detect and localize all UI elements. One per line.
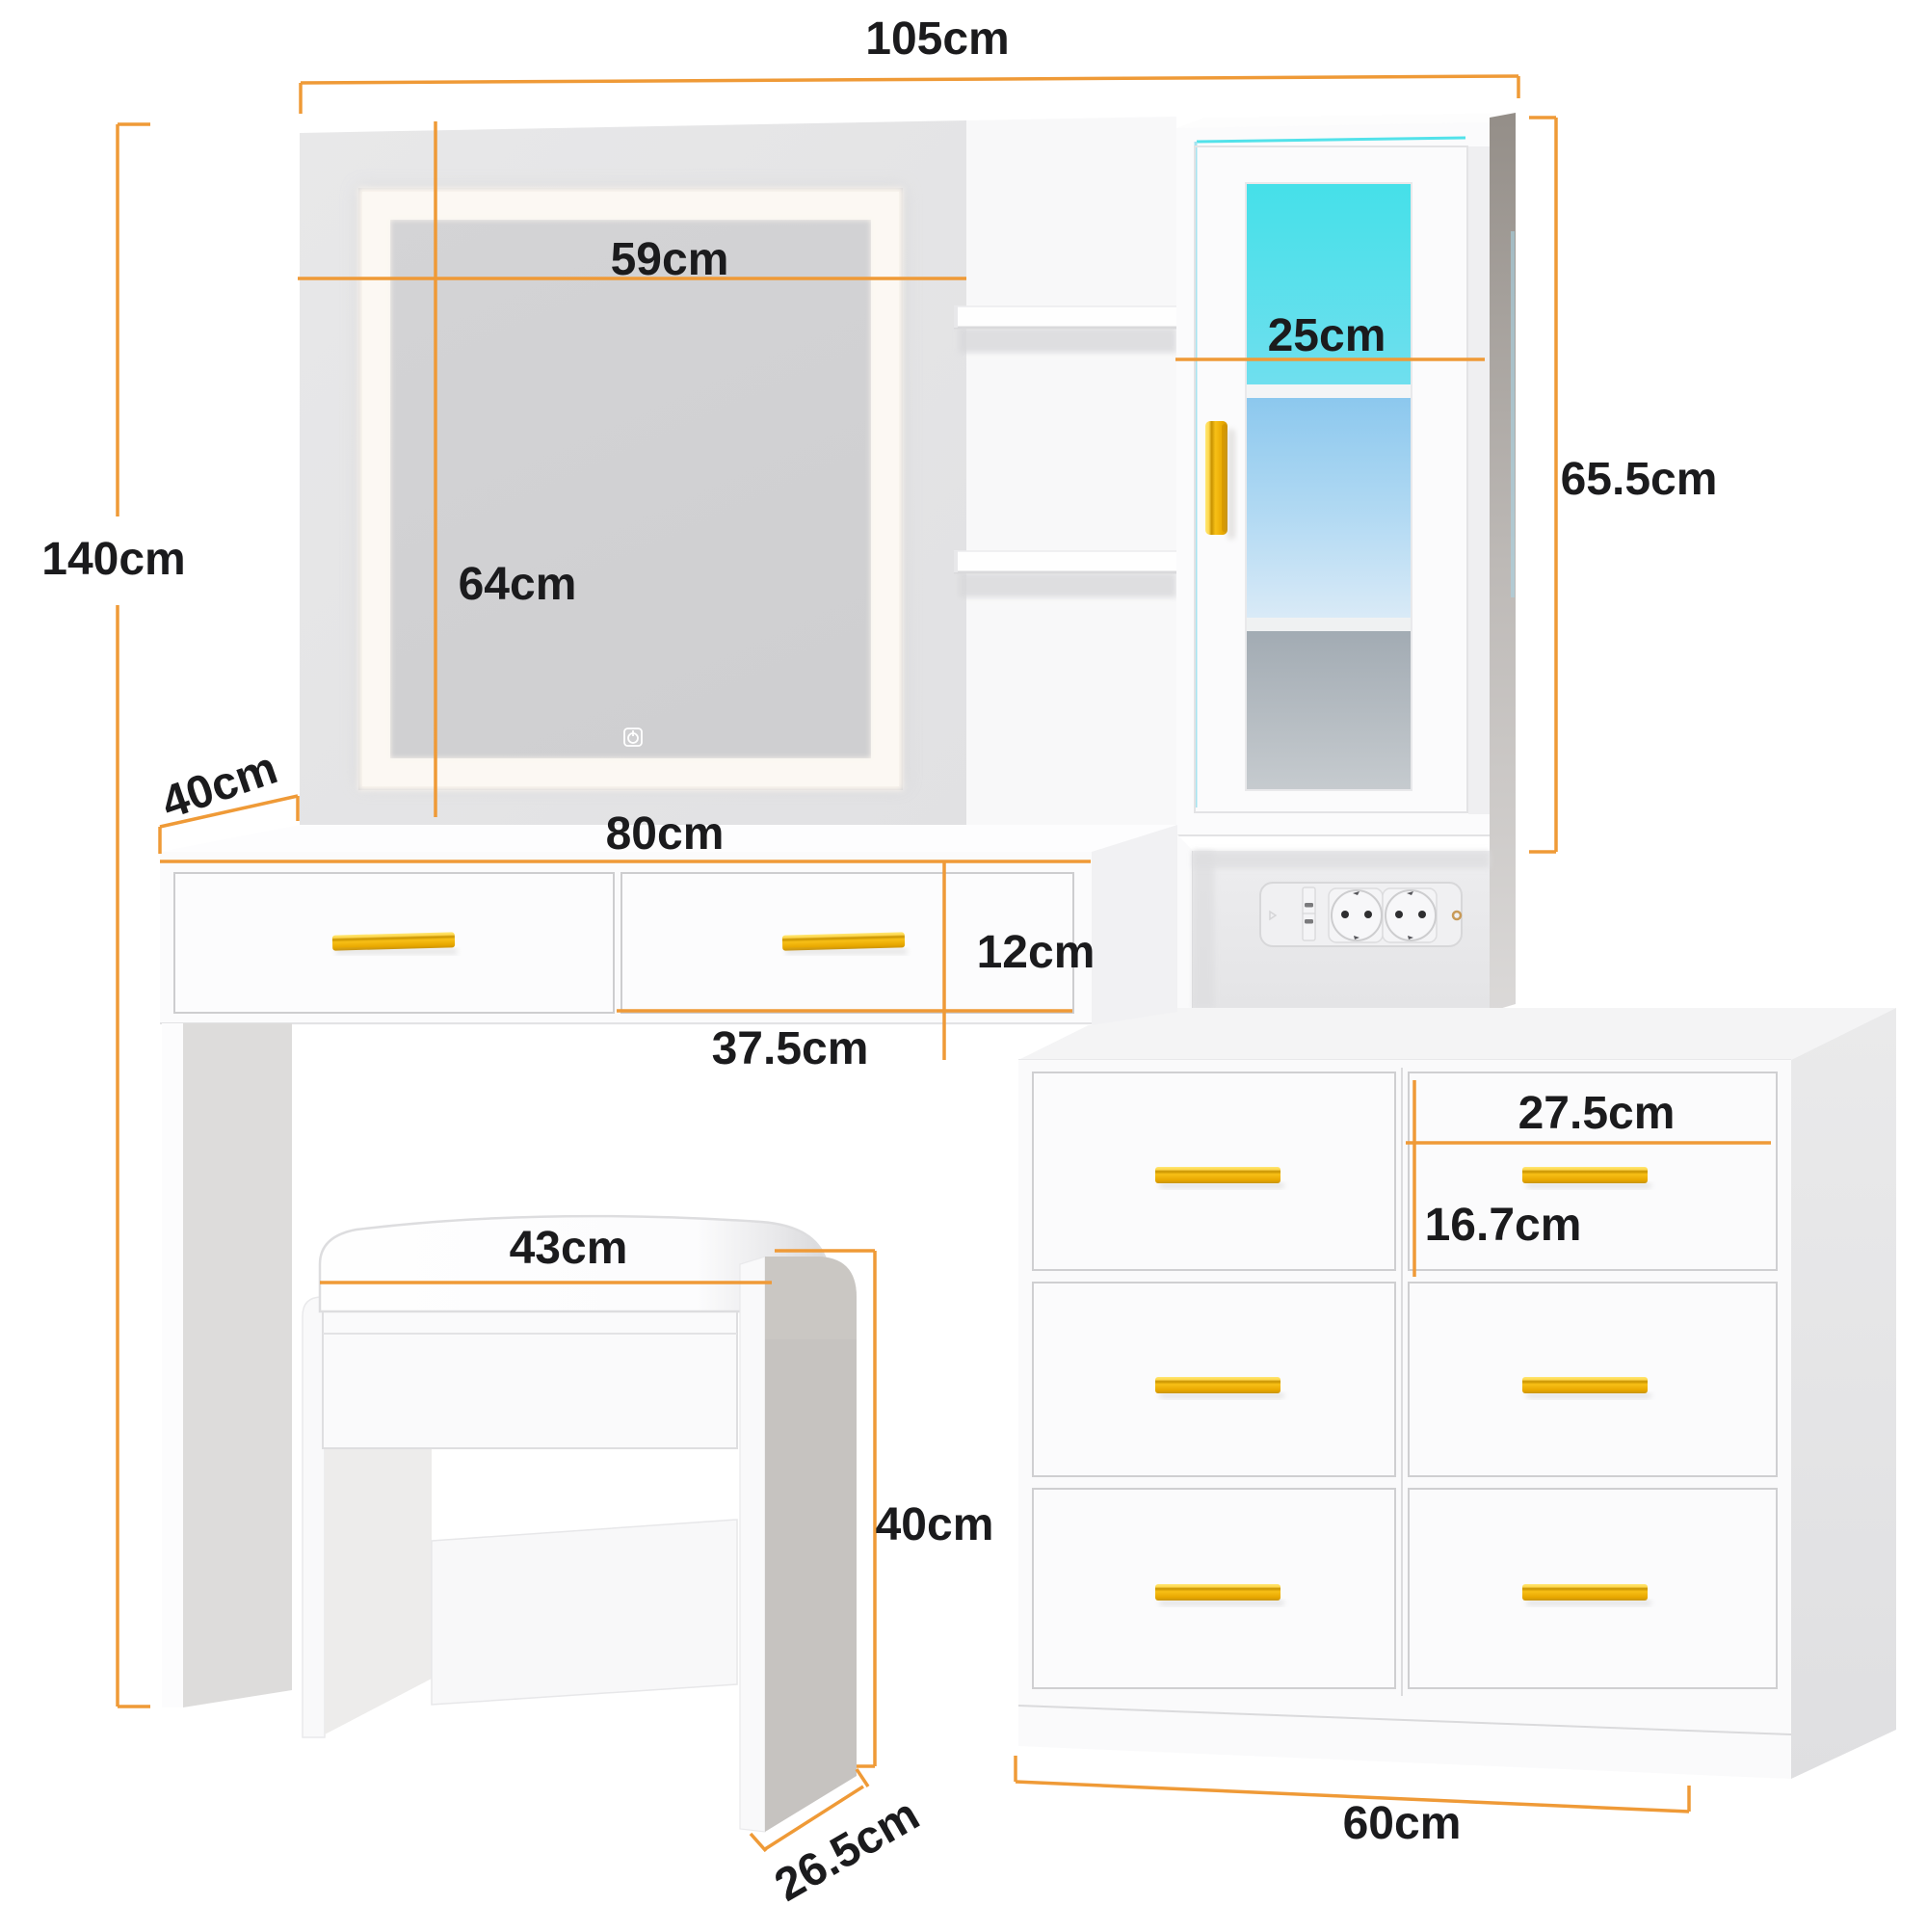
svg-text:105cm: 105cm xyxy=(865,13,1009,65)
svg-text:80cm: 80cm xyxy=(606,808,725,860)
svg-text:25cm: 25cm xyxy=(1268,310,1386,361)
svg-text:65.5cm: 65.5cm xyxy=(1561,454,1718,505)
svg-text:64cm: 64cm xyxy=(459,559,577,610)
svg-text:40cm: 40cm xyxy=(876,1499,994,1550)
svg-text:12cm: 12cm xyxy=(977,927,1095,978)
svg-text:27.5cm: 27.5cm xyxy=(1518,1088,1676,1139)
svg-text:43cm: 43cm xyxy=(510,1223,628,1274)
svg-text:60cm: 60cm xyxy=(1343,1798,1462,1849)
svg-text:16.7cm: 16.7cm xyxy=(1425,1200,1582,1251)
svg-text:37.5cm: 37.5cm xyxy=(712,1023,869,1074)
svg-text:59cm: 59cm xyxy=(611,234,729,285)
svg-text:140cm: 140cm xyxy=(41,534,185,585)
